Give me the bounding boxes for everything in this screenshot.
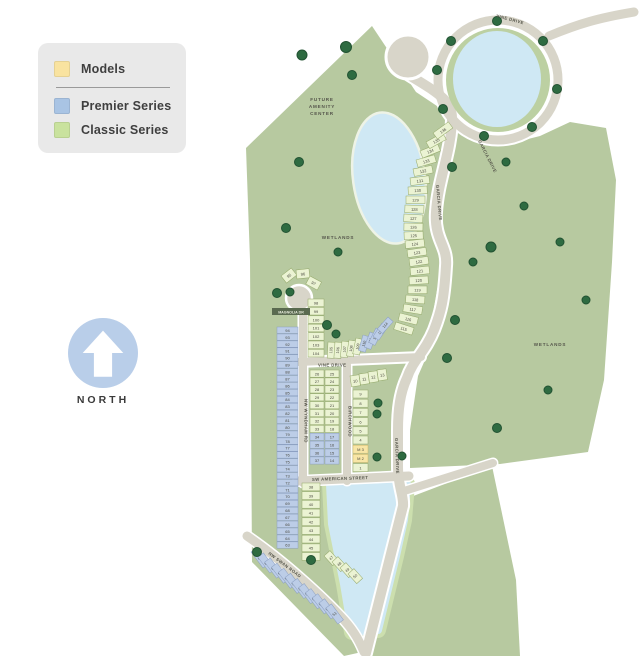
svg-text:27: 27	[315, 379, 320, 384]
lot-39: 39	[302, 492, 320, 500]
lot-5: 5	[353, 427, 368, 435]
lot-28: 28	[310, 386, 324, 393]
svg-text:78: 78	[285, 439, 290, 444]
svg-text:65: 65	[285, 529, 290, 534]
lot-76: 76	[277, 452, 298, 458]
lot-93: 93	[277, 334, 298, 340]
wetlands-right-label: WETLANDS	[534, 342, 566, 347]
lot-79: 79	[277, 431, 298, 437]
svg-text:37: 37	[315, 458, 320, 463]
legend-item-classic: Classic Series	[54, 118, 186, 142]
lot-78: 78	[277, 438, 298, 444]
lot-103: 103	[308, 341, 324, 349]
svg-text:100: 100	[313, 317, 320, 322]
lot-19: 19	[325, 417, 339, 424]
svg-text:40: 40	[309, 502, 314, 507]
lot-13: 13	[377, 369, 387, 381]
svg-text:84: 84	[285, 397, 290, 402]
lot-101: 101	[308, 324, 324, 332]
lot-77: 77	[277, 445, 298, 451]
svg-text:93: 93	[285, 335, 290, 340]
lot-74: 74	[277, 466, 298, 472]
lot-90: 90	[277, 355, 298, 361]
lot-69: 69	[277, 500, 298, 506]
wetlands-left-label: WETLANDS	[322, 235, 354, 240]
svg-text:98: 98	[314, 301, 319, 306]
svg-text:31: 31	[315, 411, 320, 416]
svg-text:119: 119	[414, 288, 421, 293]
svg-text:M 3: M 3	[357, 447, 364, 452]
lot-44: 44	[302, 535, 320, 543]
lot-72: 72	[277, 479, 298, 485]
svg-text:72: 72	[285, 480, 290, 485]
pond-north	[453, 31, 541, 127]
svg-text:15: 15	[330, 450, 335, 455]
svg-text:80: 80	[285, 425, 290, 430]
svg-text:29: 29	[315, 395, 320, 400]
svg-text:90: 90	[285, 356, 290, 361]
svg-text:107: 107	[343, 346, 348, 353]
svg-text:75: 75	[285, 460, 290, 465]
svg-text:44: 44	[309, 537, 314, 542]
lot-85: 85	[277, 389, 298, 395]
svg-text:66: 66	[285, 522, 290, 527]
lot-102: 102	[308, 333, 324, 341]
lot-43: 43	[302, 527, 320, 535]
north-label: NORTH	[68, 394, 138, 406]
svg-text:14: 14	[330, 458, 335, 463]
classic-swatch	[54, 122, 70, 138]
lot-35: 35	[310, 441, 324, 448]
svg-text:36: 36	[315, 450, 320, 455]
svg-text:64: 64	[285, 536, 290, 541]
north-arrow-icon	[68, 318, 138, 388]
lot-81: 81	[277, 417, 298, 423]
svg-text:35: 35	[315, 442, 320, 447]
street-vine-mid: VINE DRIVE	[318, 363, 346, 368]
lot-32: 32	[310, 417, 324, 424]
svg-text:M 2: M 2	[357, 456, 364, 461]
lot-23: 23	[325, 386, 339, 393]
lot-29: 29	[310, 394, 324, 401]
lot-128: 128	[405, 205, 424, 213]
svg-text:21: 21	[330, 403, 335, 408]
svg-text:94: 94	[285, 328, 290, 333]
street-birchwood: BIRCHWOOD	[348, 406, 353, 437]
lot-22: 22	[325, 394, 339, 401]
lot-67: 67	[277, 514, 298, 520]
lot-1: 1	[353, 464, 368, 472]
svg-text:17: 17	[330, 435, 335, 440]
lot-129: 129	[406, 196, 425, 204]
svg-text:19: 19	[330, 419, 335, 424]
lot-88: 88	[277, 369, 298, 375]
legend-panel: Models Premier Series Classic Series	[38, 43, 186, 153]
svg-text:99: 99	[314, 309, 319, 314]
lot-33: 33	[310, 425, 324, 432]
svg-text:77: 77	[285, 446, 290, 451]
lot-21: 21	[325, 402, 339, 409]
lot-80: 80	[277, 424, 298, 430]
svg-text:74: 74	[285, 467, 290, 472]
lot-89: 89	[277, 362, 298, 368]
svg-text:25: 25	[330, 371, 335, 376]
lot-82: 82	[277, 410, 298, 416]
svg-text:127: 127	[410, 216, 418, 221]
svg-text:45: 45	[309, 546, 314, 551]
lot-38: 38	[302, 483, 320, 491]
svg-text:68: 68	[285, 508, 290, 513]
lot-m-3: M 3	[353, 445, 368, 453]
svg-text:AMENITY: AMENITY	[309, 104, 335, 109]
svg-text:32: 32	[315, 419, 320, 424]
lot-119: 119	[408, 286, 427, 294]
premier-label: Premier Series	[81, 99, 171, 113]
legend-divider	[56, 87, 170, 88]
svg-text:125: 125	[410, 233, 418, 238]
lot-27: 27	[310, 378, 324, 385]
lot-70: 70	[277, 493, 298, 499]
lot-125: 125	[404, 231, 423, 239]
lot-20: 20	[325, 410, 339, 417]
lot-34: 34	[310, 433, 324, 440]
lot-30: 30	[310, 402, 324, 409]
lot-26: 26	[310, 370, 324, 377]
svg-text:89: 89	[285, 363, 290, 368]
svg-text:18: 18	[330, 427, 335, 432]
lot-m-2: M 2	[353, 454, 368, 462]
svg-text:101: 101	[313, 326, 320, 331]
svg-text:43: 43	[309, 528, 314, 533]
lot-130: 130	[408, 186, 427, 195]
svg-text:76: 76	[285, 453, 290, 458]
lot-42: 42	[302, 518, 320, 526]
svg-text:22: 22	[330, 395, 335, 400]
lot-25: 25	[325, 370, 339, 377]
svg-text:130: 130	[414, 188, 422, 193]
svg-text:CENTER: CENTER	[310, 111, 334, 116]
svg-text:79: 79	[285, 432, 290, 437]
future-amenity-label: FUTURE	[310, 97, 333, 102]
lot-12: 12	[368, 371, 378, 383]
lot-98: 98	[308, 299, 324, 307]
svg-text:34: 34	[315, 435, 320, 440]
svg-text:83: 83	[285, 404, 290, 409]
svg-text:85: 85	[285, 390, 290, 395]
legend-item-premier: Premier Series	[54, 94, 186, 118]
lot-37: 37	[310, 457, 324, 464]
svg-text:120: 120	[415, 278, 423, 283]
lot-118: 118	[405, 295, 424, 304]
svg-text:128: 128	[411, 207, 419, 212]
lot-8: 8	[353, 399, 368, 407]
lot-94: 94	[277, 327, 298, 333]
svg-text:70: 70	[285, 494, 290, 499]
svg-text:23: 23	[330, 387, 335, 392]
svg-text:102: 102	[313, 334, 320, 339]
lot-86: 86	[277, 382, 298, 388]
lot-91: 91	[277, 348, 298, 354]
svg-text:63: 63	[285, 543, 290, 548]
lot-6: 6	[353, 418, 368, 426]
lot-10: 10	[350, 375, 360, 387]
lot-16: 16	[325, 441, 339, 448]
svg-text:20: 20	[330, 411, 335, 416]
lot-66: 66	[277, 521, 298, 527]
lot-124: 124	[405, 239, 425, 249]
lot-41: 41	[302, 509, 320, 517]
lot-24: 24	[325, 378, 339, 385]
svg-text:106: 106	[336, 347, 340, 354]
svg-text:81: 81	[285, 418, 290, 423]
svg-text:105: 105	[329, 347, 333, 354]
roundabout	[386, 35, 430, 79]
lot-126: 126	[404, 223, 423, 231]
street-magnolia: MAGNOLIA DR	[278, 311, 304, 315]
models-swatch	[54, 61, 70, 77]
svg-text:33: 33	[315, 427, 320, 432]
lot-45: 45	[302, 544, 320, 552]
svg-text:28: 28	[315, 387, 320, 392]
lot-87: 87	[277, 376, 298, 382]
lot-17: 17	[325, 433, 339, 440]
svg-text:67: 67	[285, 515, 290, 520]
svg-text:129: 129	[412, 198, 419, 203]
lot-104: 104	[308, 349, 324, 357]
svg-text:39: 39	[309, 493, 314, 498]
svg-text:91: 91	[285, 349, 290, 354]
lot-9: 9	[353, 390, 368, 398]
svg-text:87: 87	[285, 376, 290, 381]
svg-text:126: 126	[410, 225, 418, 230]
street-wyndham: NW WYNDHAM RD	[304, 399, 309, 443]
svg-text:69: 69	[285, 501, 290, 506]
lot-63: 63	[277, 542, 298, 548]
svg-text:38: 38	[309, 485, 314, 490]
north-indicator: NORTH	[68, 318, 138, 406]
lot-40: 40	[302, 500, 320, 508]
svg-text:71: 71	[285, 487, 290, 492]
svg-text:30: 30	[315, 403, 320, 408]
lot-75: 75	[277, 459, 298, 465]
road-vine-drive-mid	[298, 357, 421, 362]
svg-text:41: 41	[309, 511, 314, 516]
lot-92: 92	[277, 341, 298, 347]
lot-100: 100	[308, 316, 324, 324]
svg-text:103: 103	[313, 343, 320, 348]
lot-73: 73	[277, 473, 298, 479]
svg-text:82: 82	[285, 411, 290, 416]
lot-11: 11	[359, 373, 369, 385]
svg-text:92: 92	[285, 342, 290, 347]
lot-127: 127	[404, 214, 423, 223]
lot-96: 96	[296, 269, 310, 279]
legend-item-models: Models	[54, 57, 186, 81]
svg-text:24: 24	[330, 379, 335, 384]
svg-text:86: 86	[285, 383, 290, 388]
lot-7: 7	[353, 408, 368, 416]
lot-18: 18	[325, 425, 339, 432]
lot-31: 31	[310, 410, 324, 417]
svg-text:73: 73	[285, 473, 290, 478]
lot-65: 65	[277, 528, 298, 534]
premier-swatch	[54, 98, 70, 114]
lot-99: 99	[308, 307, 324, 315]
lot-14: 14	[325, 457, 339, 464]
svg-text:26: 26	[315, 371, 320, 376]
lot-64: 64	[277, 535, 298, 541]
lot-120: 120	[409, 276, 428, 285]
svg-text:104: 104	[313, 351, 320, 356]
svg-text:16: 16	[330, 442, 335, 447]
lot-121: 121	[410, 266, 430, 276]
svg-text:118: 118	[412, 297, 419, 302]
lot-36: 36	[310, 449, 324, 456]
svg-text:88: 88	[285, 369, 290, 374]
svg-text:42: 42	[309, 519, 314, 524]
lot-4: 4	[353, 436, 368, 444]
lot-84: 84	[277, 396, 298, 402]
lot-83: 83	[277, 403, 298, 409]
models-label: Models	[81, 62, 125, 76]
lot-15: 15	[325, 449, 339, 456]
lot-68: 68	[277, 507, 298, 513]
lot-71: 71	[277, 486, 298, 492]
classic-label: Classic Series	[81, 123, 169, 137]
